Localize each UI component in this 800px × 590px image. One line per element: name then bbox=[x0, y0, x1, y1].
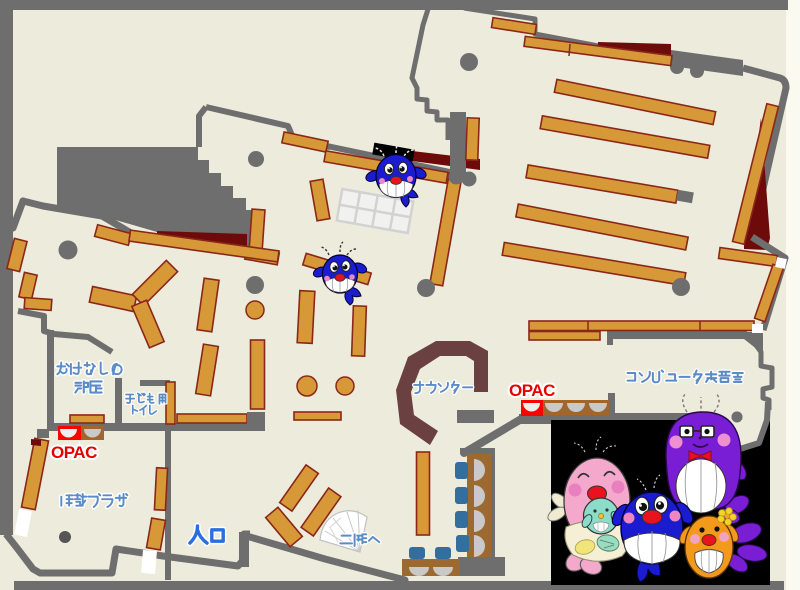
svg-text:OPAC: OPAC bbox=[509, 381, 555, 400]
svg-text:OPAC: OPAC bbox=[51, 443, 97, 462]
